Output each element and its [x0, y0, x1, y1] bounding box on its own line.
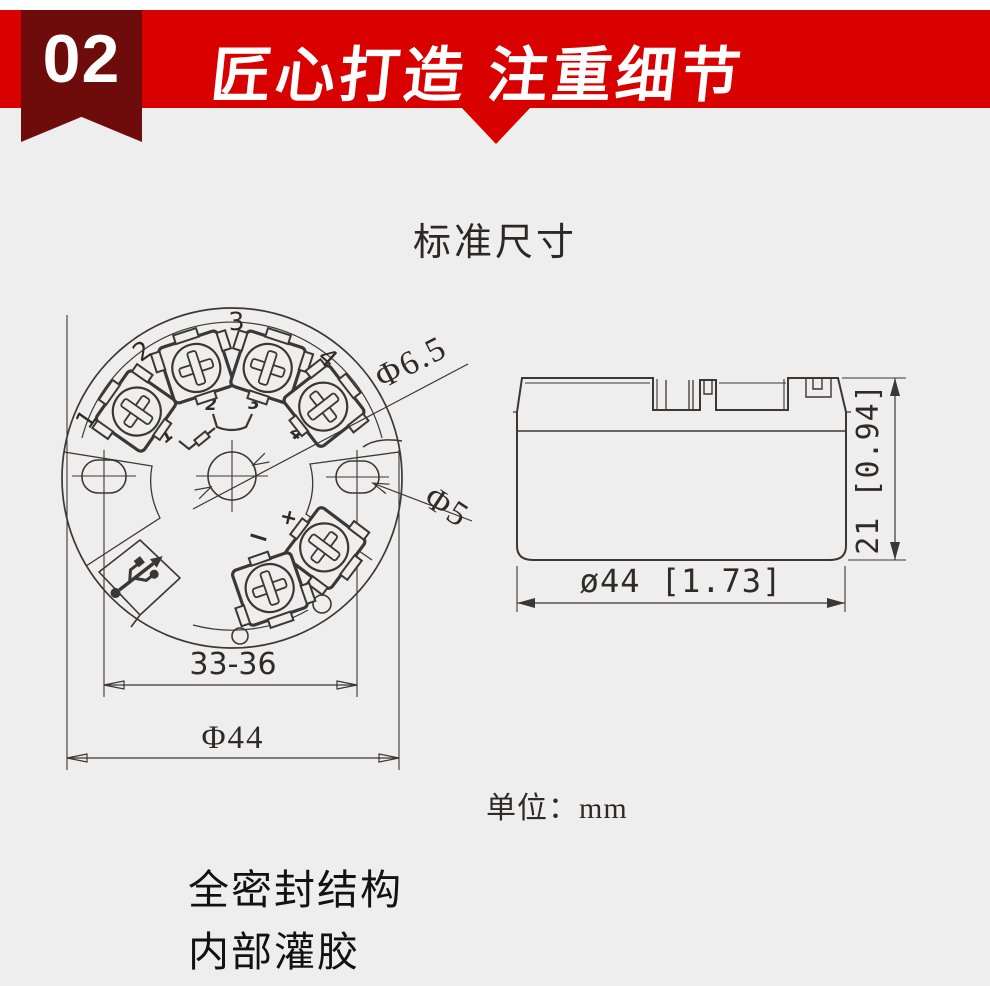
- pin-hole: [313, 595, 331, 613]
- dim-height-side-view: 21 [0.94]: [842, 378, 906, 560]
- feature-text-2: 内部灌胶: [188, 918, 360, 978]
- terminal-blocks: [83, 320, 378, 637]
- dim-label-phi44: Φ44: [201, 720, 264, 756]
- dim-side-hole: Φ5: [373, 479, 476, 535]
- usb-kite-outline: [99, 540, 180, 627]
- feature-text-1: 全密封结构: [188, 856, 403, 916]
- usb-icon: [103, 545, 171, 607]
- minus-mark: −: [244, 520, 274, 555]
- side-outline: [517, 378, 846, 560]
- top-white-strip: [0, 0, 990, 10]
- dim-label-diameter: ø44 [1.73]: [580, 562, 783, 600]
- page: 02 匠心打造 注重细节 标准尺寸: [0, 0, 990, 986]
- dim-label-span: 33-36: [189, 647, 276, 682]
- banner-title: 匠心打造 注重细节: [207, 27, 749, 114]
- edge-notch: [363, 440, 402, 447]
- dim-label-phi65: Φ6.5: [369, 329, 453, 396]
- dim-label-phi5: Φ5: [417, 479, 476, 535]
- top-view-drawing: 1 2 3 4 + − 1 2 3 4: [62, 307, 476, 770]
- dim-label-height: 21 [0.94]: [851, 383, 886, 555]
- resistor-symbol: [194, 431, 209, 445]
- section-title: 标准尺寸: [0, 211, 990, 266]
- dim-diameter-side-view: ø44 [1.73]: [517, 562, 845, 612]
- side-view-drawing: 21 [0.94] ø44 [1.73]: [513, 378, 906, 612]
- usb-area: [99, 540, 180, 627]
- dim-hole-span: 33-36: [104, 647, 357, 689]
- terminal-label-3: 3: [228, 307, 245, 337]
- section-number: 02: [21, 26, 142, 92]
- side-top-details: [513, 378, 851, 412]
- unit-note: 单位：mm: [486, 783, 628, 827]
- side-hole-left: [72, 450, 136, 697]
- technical-drawing: 1 2 3 4 + − 1 2 3 4: [0, 280, 990, 800]
